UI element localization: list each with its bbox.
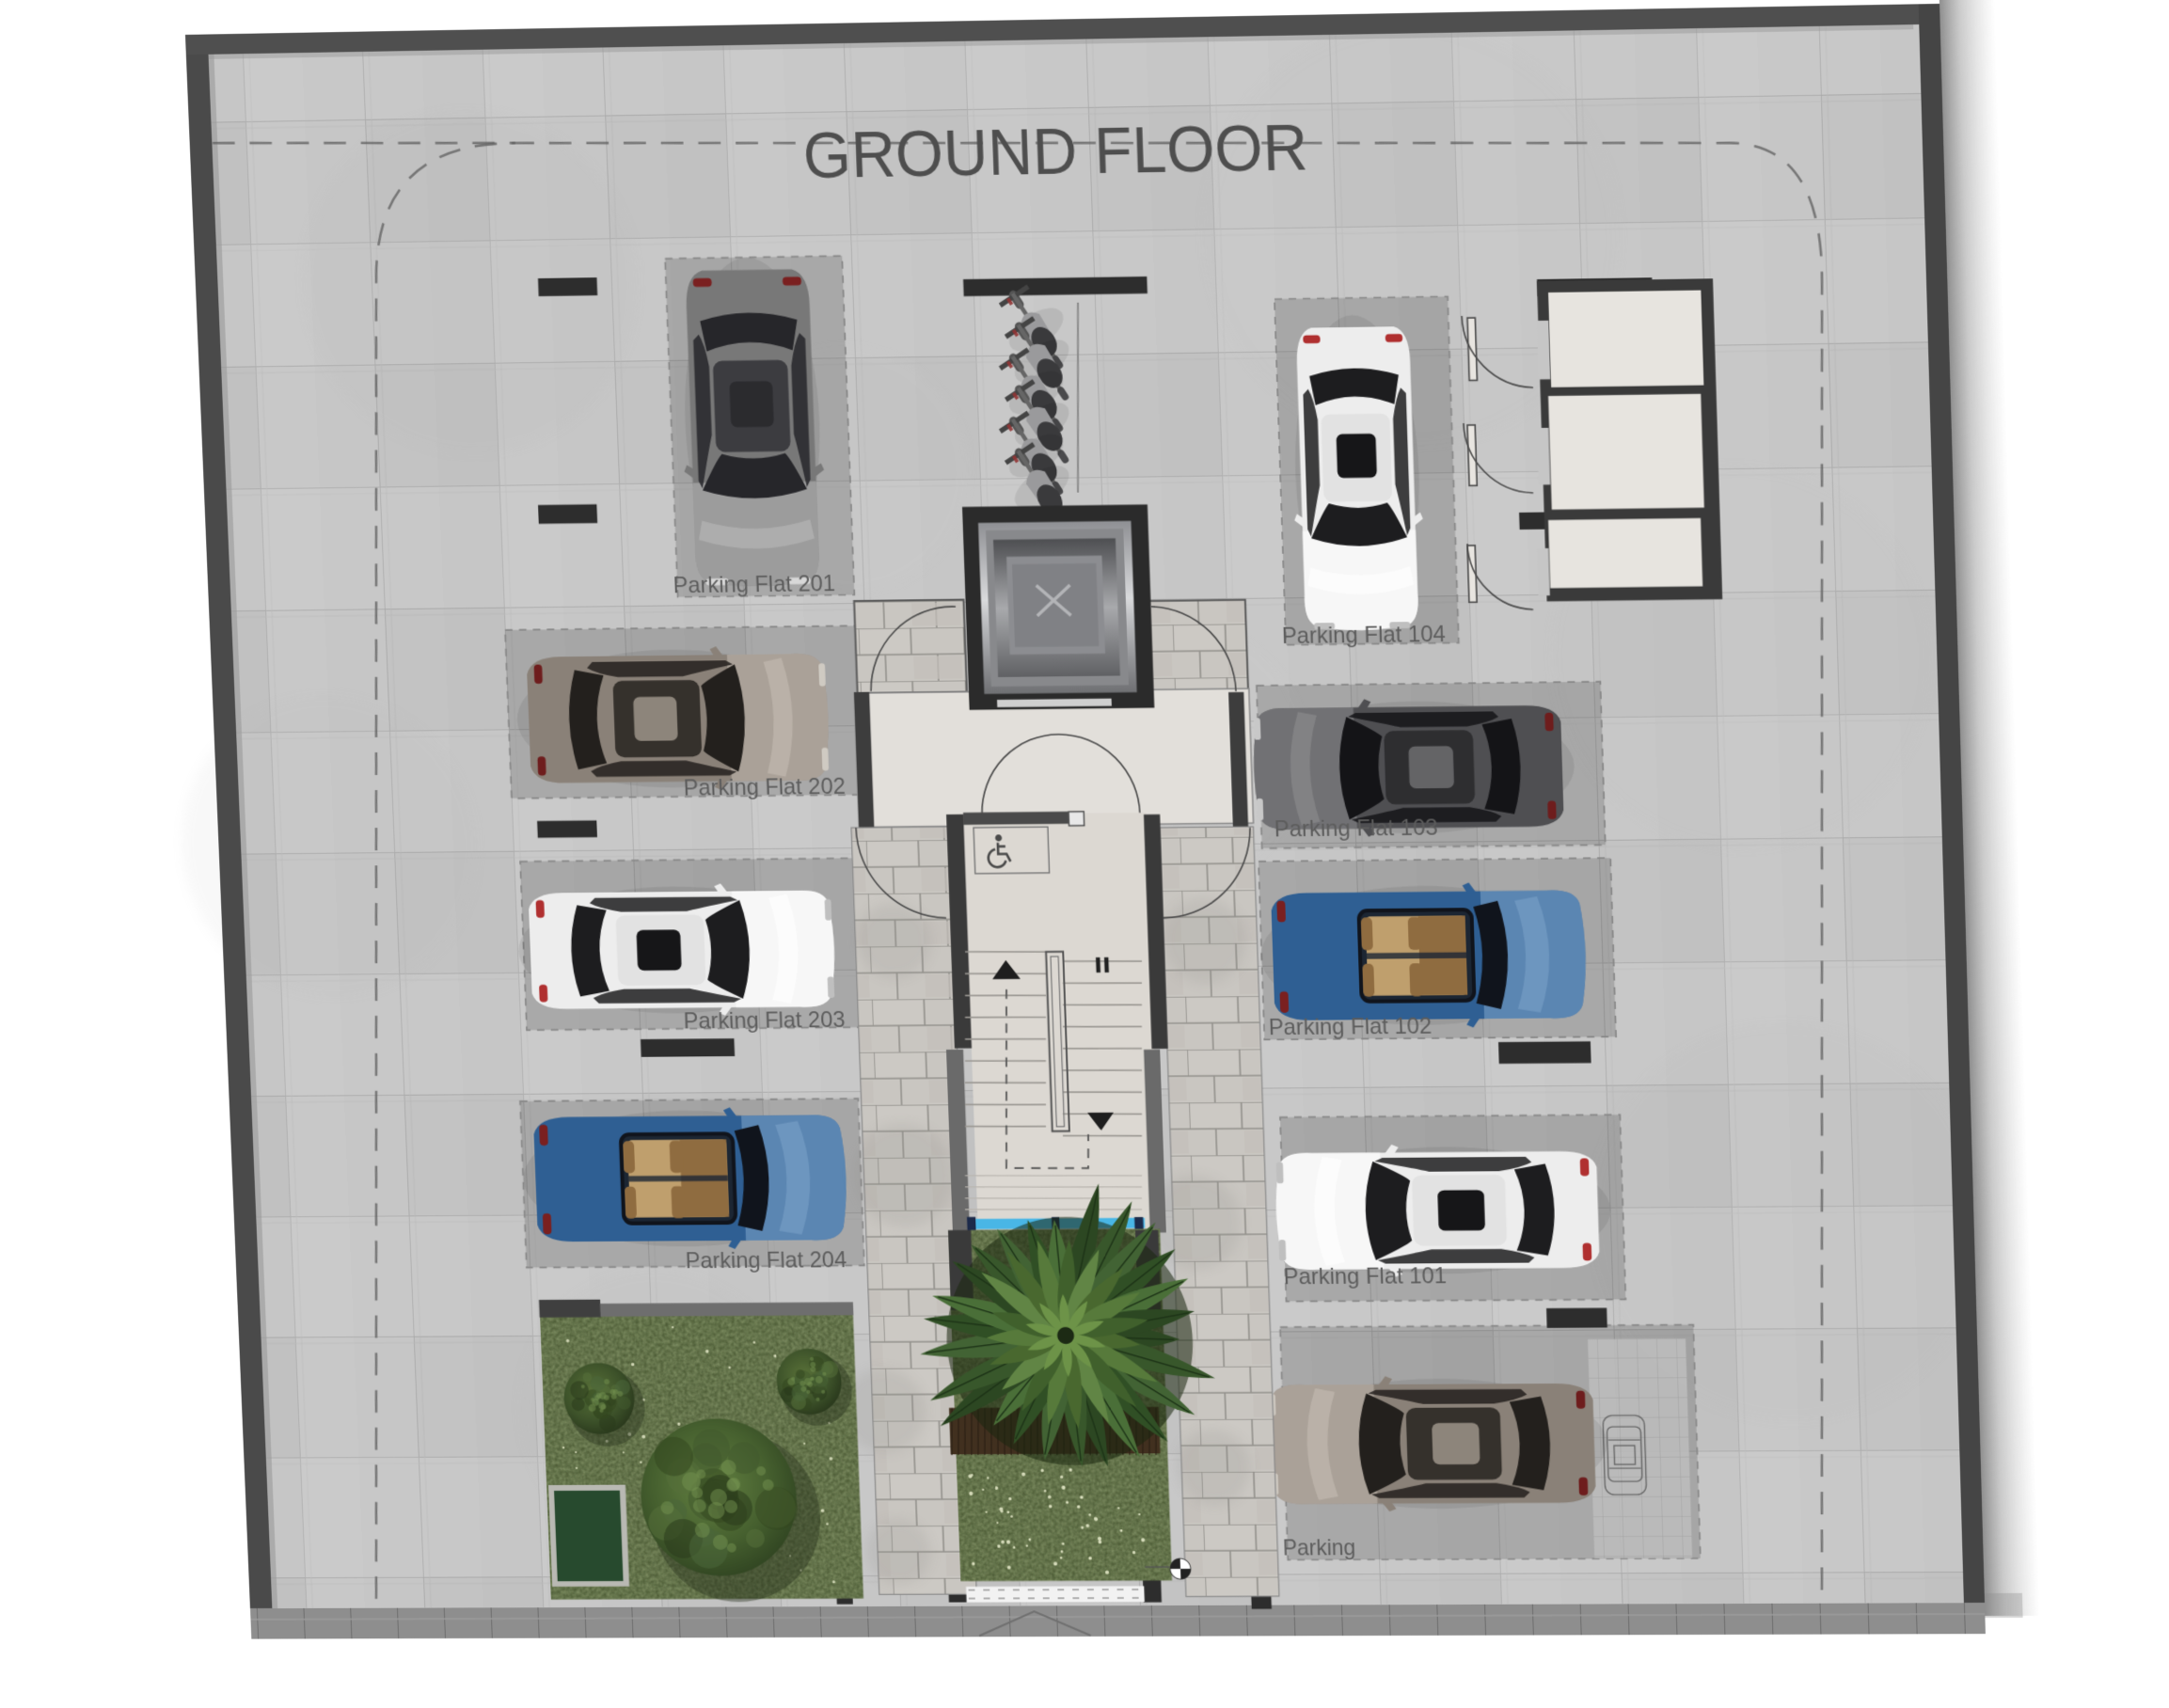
svg-text:Parking Flat 103: Parking Flat 103	[1274, 814, 1438, 842]
svg-text:Parking Flat 201: Parking Flat 201	[673, 571, 835, 598]
svg-text:GROUND FLOOR: GROUND FLOOR	[801, 110, 1308, 193]
svg-text:Parking: Parking	[1282, 1536, 1355, 1561]
svg-text:Parking Flat 102: Parking Flat 102	[1268, 1013, 1432, 1040]
svg-text:Parking Flat 203: Parking Flat 203	[683, 1006, 846, 1034]
svg-text:Parking Flat 204: Parking Flat 204	[685, 1247, 847, 1273]
svg-text:Parking Flat 202: Parking Flat 202	[683, 774, 846, 801]
svg-text:Parking Flat 101: Parking Flat 101	[1283, 1263, 1447, 1289]
svg-text:Parking Flat 104: Parking Flat 104	[1281, 622, 1446, 650]
